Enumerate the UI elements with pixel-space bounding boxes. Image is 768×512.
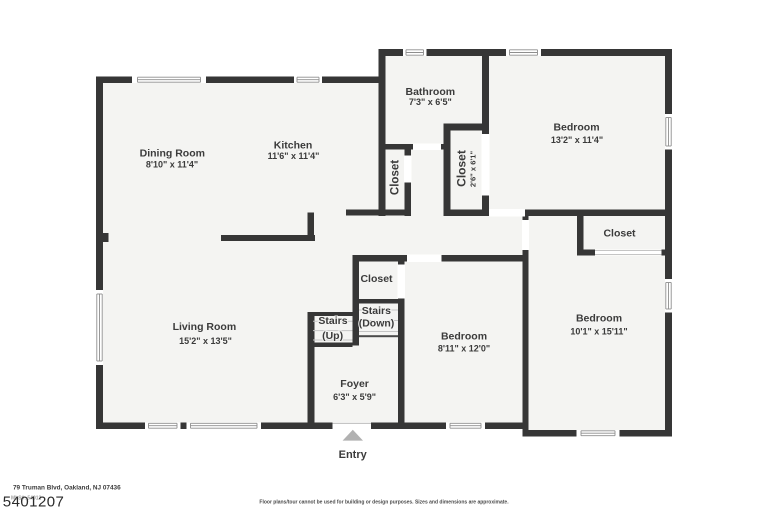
svg-text:Entry: Entry bbox=[339, 449, 368, 461]
svg-text:Floor plans/tour cannot be use: Floor plans/tour cannot be used for buil… bbox=[259, 499, 509, 505]
svg-text:Stairs: Stairs bbox=[318, 315, 347, 327]
svg-text:7'3" x 6'5": 7'3" x 6'5" bbox=[409, 97, 452, 107]
svg-text:Dining Room: Dining Room bbox=[140, 147, 205, 159]
svg-text:Stairs: Stairs bbox=[362, 305, 391, 317]
svg-text:8'11" x 12'0": 8'11" x 12'0" bbox=[438, 344, 490, 354]
svg-text:Living Room: Living Room bbox=[173, 321, 237, 333]
svg-text:13'2" x 11'4": 13'2" x 11'4" bbox=[551, 135, 603, 145]
svg-text:(Up): (Up) bbox=[322, 330, 343, 342]
svg-text:8'10" x 11'4": 8'10" x 11'4" bbox=[146, 159, 198, 169]
svg-text:Foyer: Foyer bbox=[340, 378, 369, 390]
svg-text:Closet: Closet bbox=[455, 150, 469, 187]
svg-text:11'6" x 11'4": 11'6" x 11'4" bbox=[268, 151, 320, 161]
svg-text:Bedroom: Bedroom bbox=[576, 313, 622, 325]
svg-text:79 Truman Blvd, Oakland, NJ 07: 79 Truman Blvd, Oakland, NJ 07436 bbox=[13, 484, 121, 491]
svg-text:(Down): (Down) bbox=[359, 317, 395, 329]
svg-text:10'1" x 15'11": 10'1" x 15'11" bbox=[570, 327, 627, 337]
svg-text:6'3" x 5'9": 6'3" x 5'9" bbox=[333, 392, 376, 402]
svg-text:15'2" x 13'5": 15'2" x 13'5" bbox=[179, 336, 232, 346]
svg-text:Kitchen: Kitchen bbox=[274, 140, 313, 152]
svg-text:Closet: Closet bbox=[360, 273, 393, 285]
svg-text:2'6" x 6'1": 2'6" x 6'1" bbox=[469, 151, 478, 188]
svg-text:Closet: Closet bbox=[603, 227, 636, 239]
svg-text:Bedroom: Bedroom bbox=[441, 331, 487, 343]
svg-text:5401207: 5401207 bbox=[3, 494, 65, 511]
svg-text:Closet: Closet bbox=[390, 160, 402, 195]
svg-text:Bedroom: Bedroom bbox=[553, 122, 599, 134]
